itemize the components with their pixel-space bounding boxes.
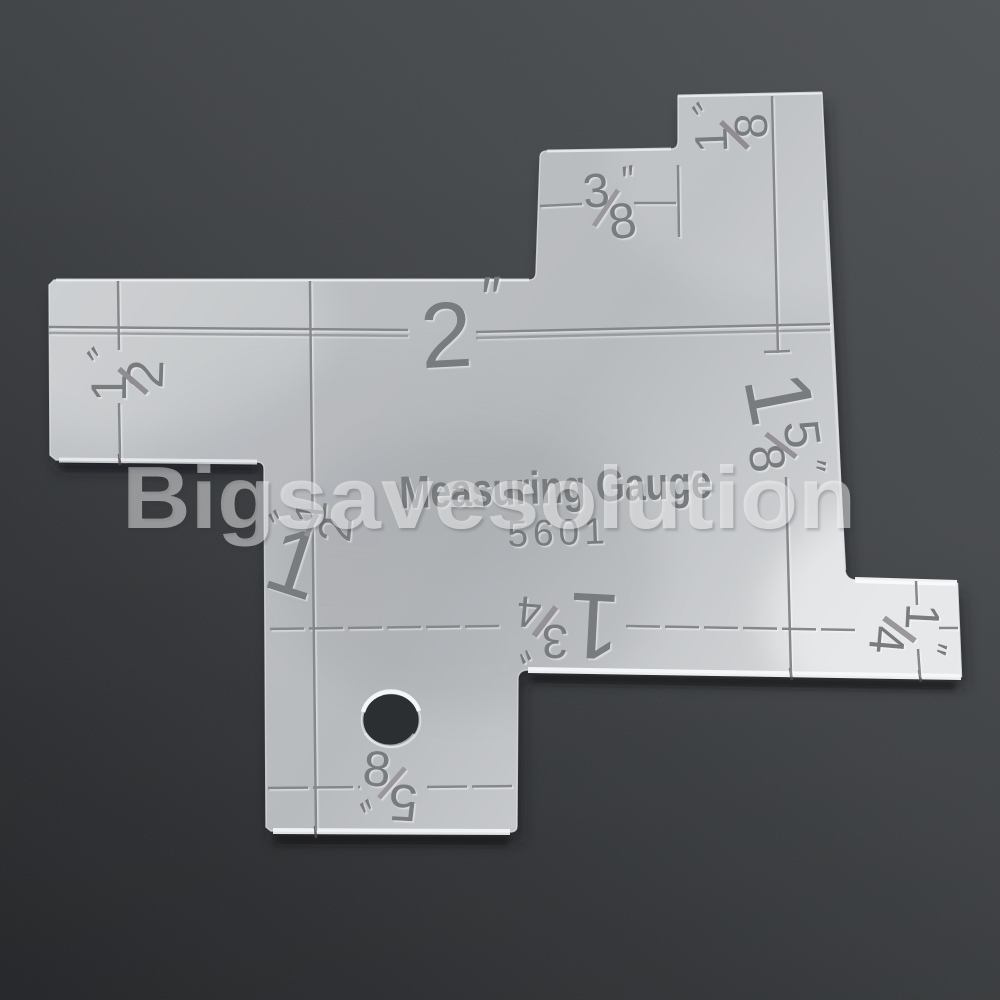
svg-text:1: 1 (565, 573, 623, 681)
svg-text:2: 2 (418, 282, 475, 389)
svg-text:Bigsavesolution: Bigsavesolution (122, 449, 856, 547)
svg-text:4: 4 (858, 624, 916, 657)
svg-text:″: ″ (480, 265, 504, 331)
